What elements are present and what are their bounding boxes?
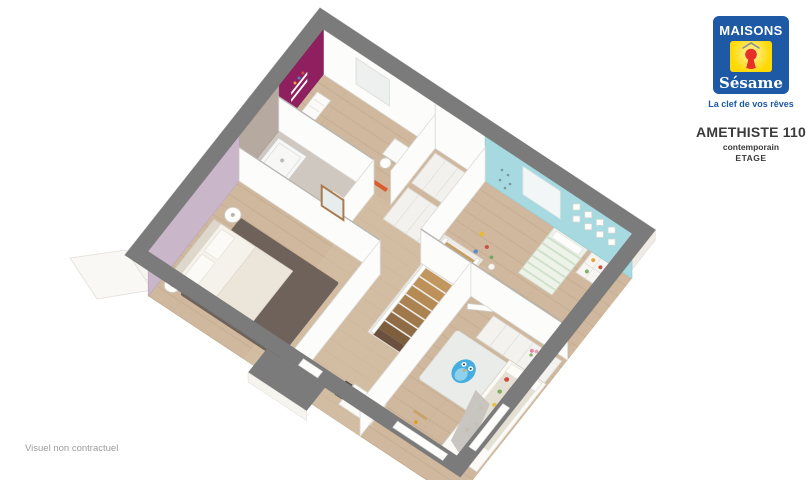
- keyhole-icon: [730, 41, 772, 72]
- plan-title: AMETHISTE 110: [694, 124, 808, 140]
- roof-icon: [743, 43, 759, 48]
- disclaimer-text: Visuel non contractuel: [25, 443, 118, 454]
- brand-panel: MAISONS Sésame La clef de vos rêves AMET…: [694, 16, 808, 163]
- plan-identification: AMETHISTE 110 contemporain ETAGE: [694, 124, 808, 163]
- logo-wordmark: Sésame: [719, 74, 783, 92]
- plan-level: ETAGE: [694, 153, 808, 163]
- keyhole-badge: [730, 41, 772, 72]
- floor-plan-render: [0, 0, 811, 480]
- logo-tagline: La clef de vos rêves: [694, 99, 808, 109]
- page: MAISONS Sésame La clef de vos rêves AMET…: [0, 0, 811, 480]
- logo-brand-name: MAISONS: [719, 23, 782, 38]
- plan-style: contemporain: [694, 142, 808, 152]
- logo: MAISONS Sésame: [713, 16, 789, 94]
